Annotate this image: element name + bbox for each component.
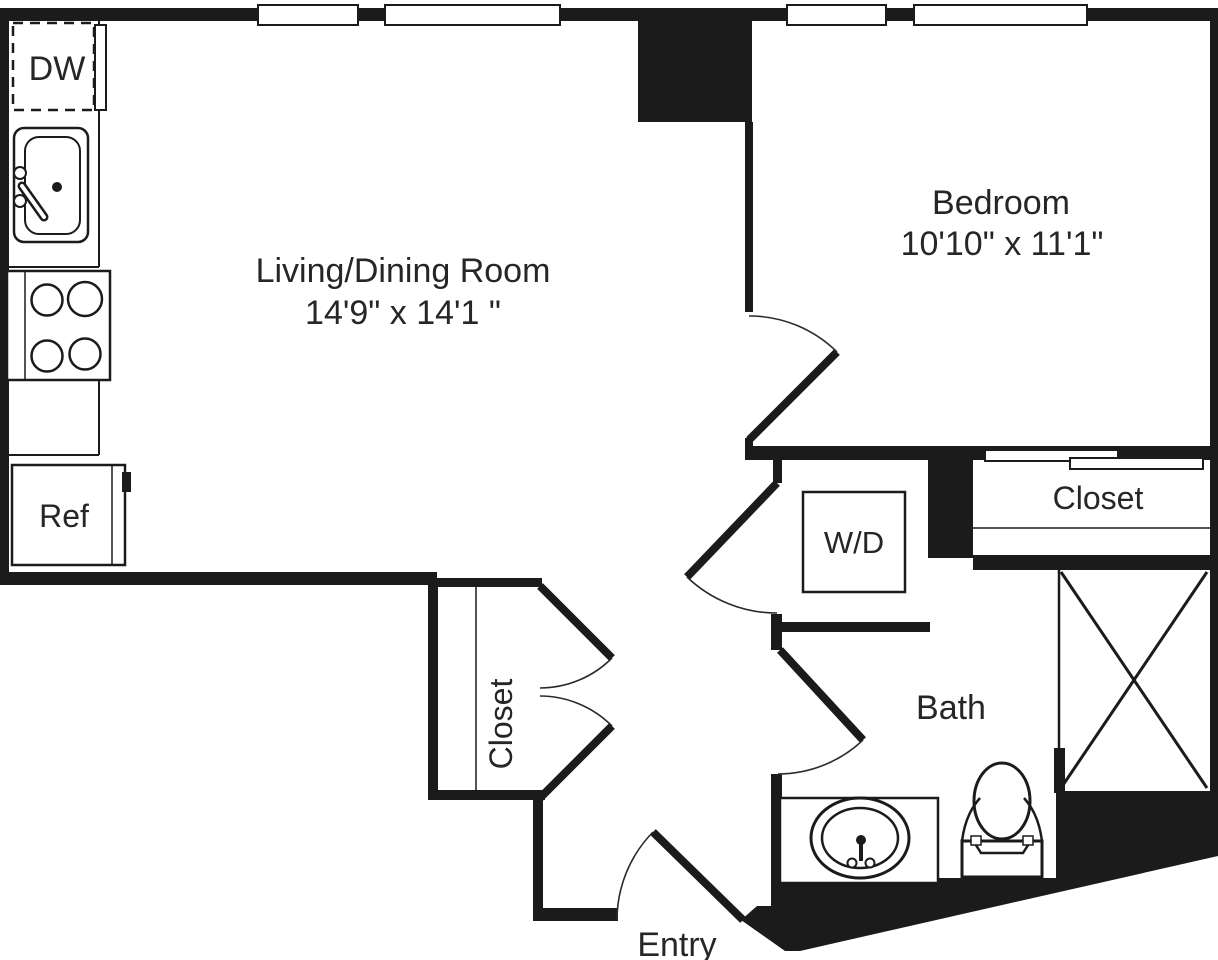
toilet-bolt-right <box>1023 836 1033 845</box>
entry-door-leaf <box>653 832 743 920</box>
wd-left-jamb <box>773 460 782 483</box>
vanity-knob-2 <box>866 859 875 868</box>
pillar <box>638 21 752 122</box>
washer-dryer-label: W/D <box>824 525 884 560</box>
dishwasher-door <box>95 25 106 110</box>
sliding-door-panel-2 <box>1070 458 1203 469</box>
vanity <box>780 798 938 883</box>
dishwasher-label: DW <box>29 50 86 88</box>
hall-closet-label: Closet <box>483 679 519 770</box>
bedroom-dimensions: 10'10" x 11'1" <box>901 225 1104 263</box>
stove <box>7 271 110 380</box>
bath-door-arc <box>778 740 863 774</box>
living-bottom-wall <box>0 572 437 585</box>
hall-closet-door-leaf-upper <box>540 586 612 658</box>
entry-label: Entry <box>637 926 716 960</box>
bedroom-door-arc <box>749 316 837 352</box>
sink-drain <box>52 182 62 192</box>
burner-top-left <box>32 285 63 316</box>
living-dining-label: Living/Dining Room <box>256 252 551 290</box>
faucet-knob-1 <box>14 167 26 179</box>
hall-closet-door-arc-upper <box>540 658 612 688</box>
toilet-bolt-left <box>971 836 981 845</box>
hall-closet-door-arc-lower <box>540 696 612 726</box>
bedroom-door <box>749 316 837 440</box>
living-dining-dimensions: 14'9" x 14'1 " <box>305 294 501 332</box>
walls <box>0 8 1218 951</box>
bath-label: Bath <box>916 689 986 727</box>
hall-closet-top-wall <box>428 578 542 587</box>
bath-door-leaf <box>780 650 863 740</box>
burner-top-right <box>68 282 102 316</box>
toilet <box>962 763 1042 877</box>
wd-door-leaf <box>687 483 777 577</box>
vanity-knob-1 <box>848 859 857 868</box>
window-3 <box>787 5 886 25</box>
entry-bottom-wall <box>533 908 618 921</box>
right-wall <box>1210 8 1218 856</box>
bedroom-closet-bottom-wall <box>973 555 1218 570</box>
entry-door-arc <box>617 832 653 920</box>
living-bedroom-divider-wall <box>745 122 753 312</box>
fridge-handle <box>122 472 131 492</box>
toilet-tank <box>962 841 1042 877</box>
wd-door-arc <box>687 577 777 613</box>
wd-bottom-wall <box>780 622 930 632</box>
entry-left-wall <box>533 800 543 921</box>
hall-closet-bottom-wall <box>428 790 545 800</box>
labels: Living/Dining Room 14'9" x 14'1 " Bedroo… <box>29 50 1144 960</box>
window-4 <box>914 5 1087 25</box>
kitchen <box>0 21 131 565</box>
hall-closet-left-wall <box>428 578 438 800</box>
bedroom-label: Bedroom <box>932 184 1070 222</box>
burner-bottom-left <box>32 341 63 372</box>
floor-plan: Living/Dining Room 14'9" x 14'1 " Bedroo… <box>0 0 1218 960</box>
kitchen-sink <box>14 128 88 242</box>
entry-door <box>617 832 743 920</box>
window-2 <box>385 5 560 25</box>
bedroom-closet-label: Closet <box>1053 480 1144 516</box>
burner-bottom-right <box>70 339 101 370</box>
hall-closet-door-leaf-lower <box>540 726 612 798</box>
toilet-bowl <box>974 763 1030 839</box>
wd-closet-divider-wall <box>928 452 973 558</box>
floor-plan-canvas: Living/Dining Room 14'9" x 14'1 " Bedroo… <box>0 0 1218 960</box>
refrigerator-label: Ref <box>39 498 89 534</box>
window-1 <box>258 5 358 25</box>
bedroom-door-leaf <box>749 352 837 440</box>
